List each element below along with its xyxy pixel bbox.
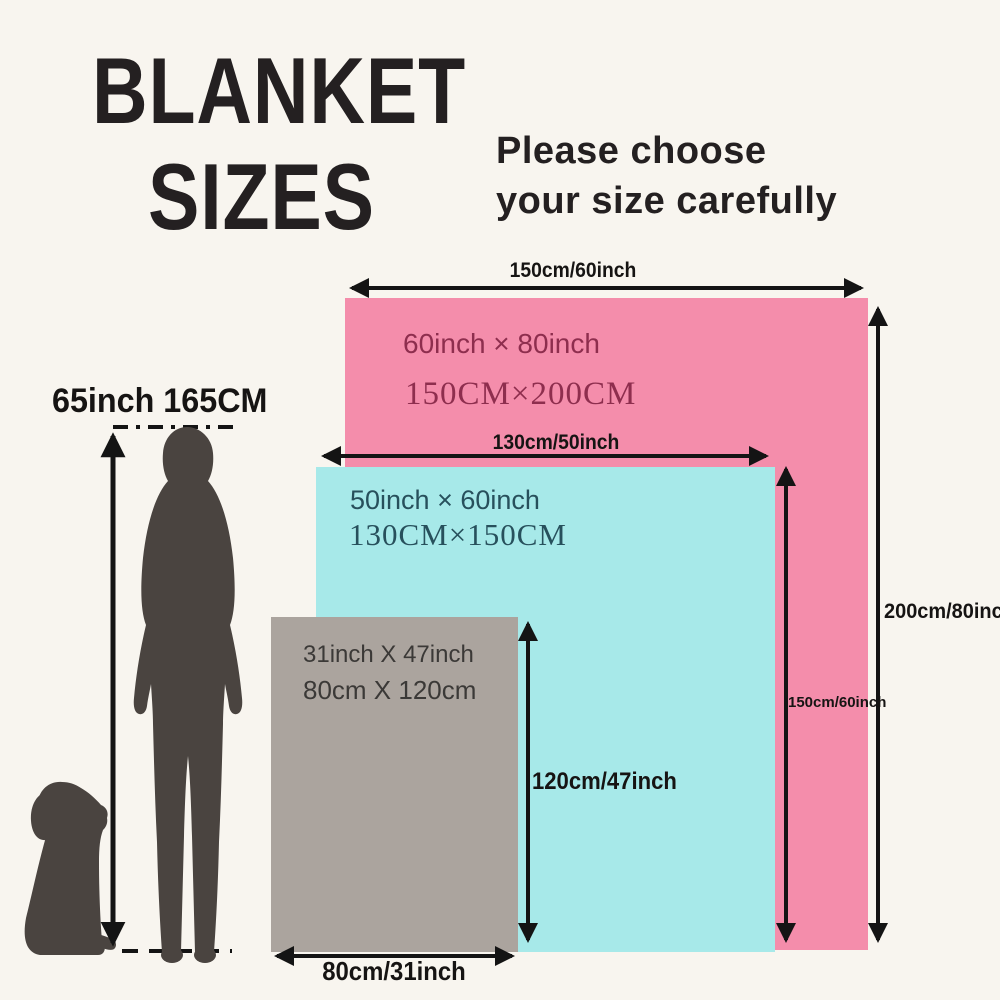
width-label-large: 150cm/60inch xyxy=(510,259,637,283)
size-chart-infographic: BLANKET SIZES Please choose your size ca… xyxy=(0,0,1000,1000)
dog-silhouette xyxy=(25,782,116,955)
person-height-label: 65inch 165CM xyxy=(52,382,267,421)
measure-overlay xyxy=(0,0,1000,1000)
width-label-small: 80cm/31inch xyxy=(322,956,466,987)
woman-silhouette xyxy=(134,427,243,963)
height-label-large: 200cm/80inch xyxy=(884,600,1000,624)
height-label-small: 120cm/47inch xyxy=(532,768,677,796)
height-label-medium: 150cm/60inch xyxy=(788,694,886,711)
width-label-medium: 130cm/50inch xyxy=(493,431,620,455)
